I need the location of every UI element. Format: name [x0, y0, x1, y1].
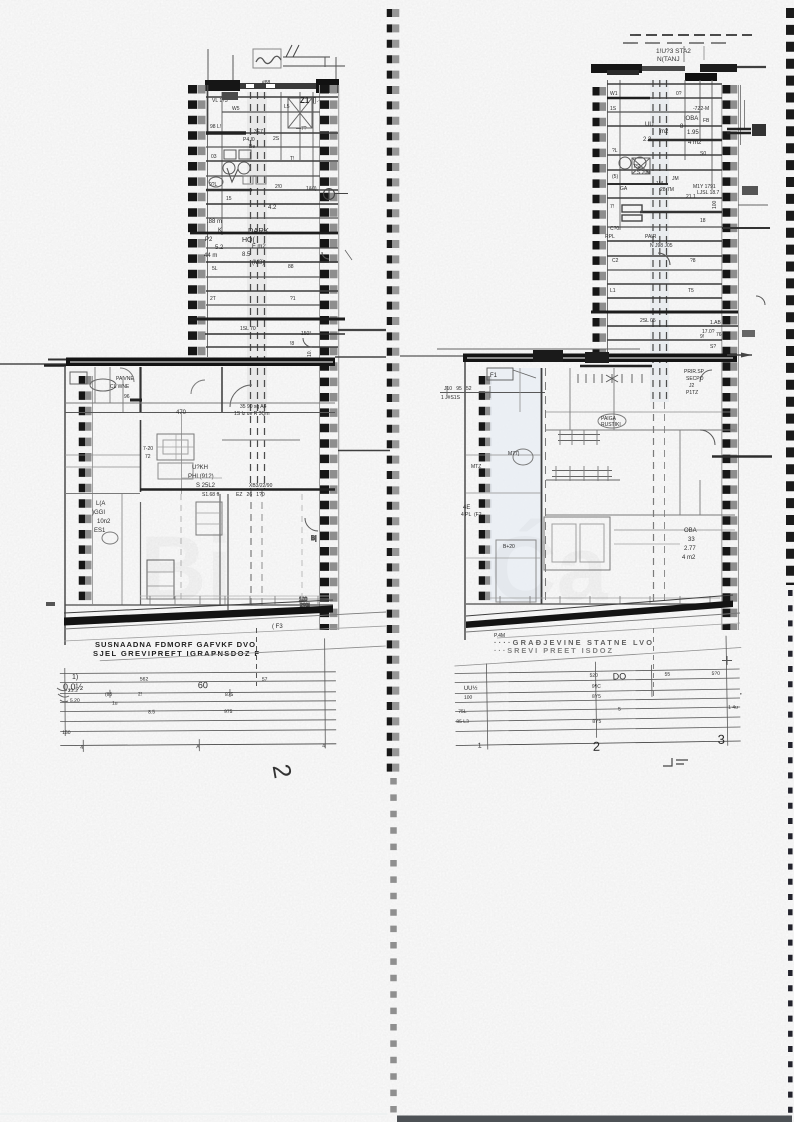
svg-text:SECPO: SECPO: [686, 376, 704, 382]
svg-text:P4.I0: P4.I0: [243, 137, 255, 143]
svg-text:U?KH: U?KH: [192, 465, 208, 471]
svg-text:S 208: S 208: [637, 170, 650, 176]
svg-text:4.2: 4.2: [268, 205, 277, 211]
svg-text:···SREVI PREET ISDOZ: ···SREVI PREET ISDOZ: [494, 646, 612, 655]
svg-text:0?: 0?: [676, 91, 682, 97]
svg-text:J10 95 52: J10 95 52: [444, 386, 472, 392]
svg-text:Ća: Ća: [490, 517, 608, 620]
svg-text:4 m2: 4 m2: [682, 555, 696, 561]
svg-text:1u: 1u: [112, 701, 118, 707]
svg-text:W5: W5: [232, 106, 240, 112]
svg-text:8.5: 8.5: [148, 709, 155, 715]
svg-text:55: 55: [665, 672, 671, 678]
svg-text:S1.68 ff: S1.68 ff: [202, 492, 220, 498]
svg-text:L5: L5: [284, 104, 290, 110]
svg-text:1): 1): [72, 674, 78, 681]
svg-text:B|: B|: [311, 536, 317, 542]
svg-text:150: 150: [62, 730, 71, 736]
svg-text:M77): M77): [508, 451, 520, 457]
svg-text:m2: m2: [660, 129, 669, 135]
svg-text:875: 875: [225, 692, 234, 698]
svg-text:44 m: 44 m: [204, 253, 217, 259]
svg-text:ES1: ES1: [94, 528, 106, 534]
svg-text:98 L!: 98 L!: [210, 124, 221, 130]
svg-text:(F2: (F2: [474, 512, 482, 518]
svg-text:?8: ?8: [690, 258, 696, 264]
svg-text:562: 562: [140, 676, 149, 682]
svg-text:2.77: 2.77: [684, 546, 696, 552]
svg-text:DO: DO: [613, 671, 627, 681]
svg-text:N J98 J05: N J98 J05: [650, 243, 673, 249]
svg-text:(M3): (M3): [252, 260, 264, 266]
svg-text:( F3: ( F3: [272, 624, 283, 630]
svg-text:S 25L2: S 25L2: [196, 483, 216, 489]
svg-text:1S Iz ue R 3Qm: 1S Iz ue R 3Qm: [234, 411, 270, 417]
svg-text:RUSTIKI: RUSTIKI: [601, 422, 621, 428]
svg-text:5L: 5L: [212, 266, 218, 272]
svg-text:72: 72: [145, 454, 151, 460]
svg-text:10n2: 10n2: [97, 519, 111, 525]
svg-text:K: K: [218, 228, 222, 234]
svg-text:HO(: HO(: [242, 237, 256, 244]
svg-text:5.2: 5.2: [215, 245, 224, 251]
svg-text:F1: F1: [490, 373, 498, 379]
svg-text:4 m2: 4 m2: [688, 140, 702, 146]
svg-text:100: 100: [712, 200, 718, 209]
svg-text:Bi: Bi: [140, 518, 232, 620]
svg-text:DARK: DARK: [248, 226, 269, 235]
svg-text:1S: 1S: [610, 106, 617, 112]
svg-text:PAIR: PAIR: [645, 234, 657, 240]
svg-text:57: 57: [262, 677, 268, 683]
svg-text:[].·: [].·: [313, 98, 320, 104]
svg-text:PRIR.SP: PRIR.SP: [684, 369, 705, 375]
svg-text:9¶C: 9¶C: [592, 684, 602, 690]
svg-text:-7Z2-M: -7Z2-M: [693, 106, 709, 112]
svg-text:P2: P2: [205, 237, 213, 243]
svg-text:F m2: F m2: [252, 244, 266, 250]
svg-text:1.AB: 1.AB: [710, 320, 722, 326]
svg-text:?L: ?L: [612, 148, 618, 154]
svg-text:1!U?3 STA2: 1!U?3 STA2: [656, 48, 691, 55]
svg-text:2.3: 2.3: [643, 137, 652, 143]
svg-text:2S: 2S: [273, 136, 280, 142]
svg-text:Be: Be: [249, 144, 255, 150]
svg-text:470: 470: [176, 410, 187, 416]
svg-text:EZ 26 1?0: EZ 26 1?0: [236, 492, 265, 498]
svg-text:5.20: 5.20: [70, 698, 80, 704]
svg-text:!8: !8: [290, 341, 294, 347]
svg-text:N(TANJ: N(TANJ: [657, 56, 680, 63]
svg-text:XB3/22/90: XB3/22/90: [249, 483, 273, 489]
svg-text:3E7: 3E7: [254, 129, 263, 135]
svg-text:5: 5: [618, 706, 621, 712]
svg-text:60: 60: [198, 680, 208, 690]
svg-text:L(A: L(A: [96, 501, 105, 507]
svg-text:4: 4: [322, 743, 325, 749]
svg-text:17.0?: 17.0?: [702, 329, 715, 335]
svg-text:35 90 xq A4: 35 90 xq A4: [240, 404, 267, 410]
svg-text:(85: (85: [105, 692, 112, 698]
svg-text:T5: T5: [688, 288, 694, 294]
svg-text:1&0): 1&0): [306, 186, 317, 192]
svg-text:1SL 70: 1SL 70: [240, 326, 256, 332]
svg-text:2SL 05: 2SL 05: [640, 318, 656, 324]
svg-text:MTZ: MTZ: [471, 464, 481, 470]
svg-text:1.95: 1.95: [687, 130, 699, 136]
svg-text:7-20: 7-20: [143, 446, 153, 452]
svg-text:975: 975: [224, 709, 233, 715]
svg-text:8Y5: 8Y5: [592, 719, 601, 725]
svg-text:W1: W1: [610, 91, 618, 97]
svg-text:C2: C2: [612, 258, 619, 264]
svg-text:23.3: 23.3: [68, 688, 78, 694]
svg-text:18: 18: [700, 218, 706, 224]
svg-text:1: 1: [478, 743, 482, 750]
svg-text:—7?: —7?: [296, 126, 307, 132]
svg-text:7!: 7!: [610, 204, 614, 210]
svg-text:88: 88: [288, 264, 294, 270]
svg-text:FB: FB: [703, 118, 710, 124]
svg-text:RPL: RPL: [605, 234, 615, 240]
svg-text:4 PL: 4 PL: [461, 512, 472, 518]
svg-text:PHL(912): PHL(912): [188, 474, 214, 480]
svg-text:10.: 10.: [307, 350, 313, 357]
svg-text:UU: UU: [645, 122, 654, 128]
svg-text:33: 33: [688, 537, 695, 543]
svg-text:4: 4: [80, 745, 83, 751]
svg-text:2!: 2!: [138, 691, 142, 697]
svg-text:8.5: 8.5: [242, 252, 251, 258]
svg-text:LJSL 18.7: LJSL 18.7: [697, 190, 720, 196]
svg-text:J2: J2: [689, 383, 695, 389]
svg-text:PA VNE: PA VNE: [116, 376, 134, 382]
svg-text:.88 m: .88 m: [207, 219, 222, 225]
svg-text:28 7M: 28 7M: [660, 187, 674, 193]
svg-text:T!: T!: [290, 156, 294, 162]
svg-text:1 4u: 1 4u: [728, 705, 738, 711]
svg-text:15: 15: [226, 196, 232, 202]
svg-text:75L: 75L: [458, 709, 467, 715]
svg-text:100: 100: [464, 695, 473, 701]
svg-text:UU½: UU½: [464, 685, 478, 692]
svg-text:Z1: Z1: [300, 96, 310, 105]
svg-text:96: 96: [124, 394, 130, 400]
svg-text:?1: ?1: [290, 296, 296, 302]
svg-text:(5): (5): [612, 174, 618, 180]
svg-text:SUSNAADNA FDMORF GAFVKF DVO: SUSNAADNA FDMORF GAFVKF DVO: [95, 640, 255, 649]
svg-text:150°: 150°: [301, 331, 311, 337]
svg-text:5?0: 5?0: [712, 671, 721, 677]
svg-text:2: 2: [593, 739, 600, 754]
svg-text:|OBA: |OBA: [684, 116, 698, 122]
svg-text:OBA: OBA: [684, 528, 697, 534]
svg-text:L1: L1: [610, 288, 616, 294]
svg-text:2T: 2T: [210, 296, 216, 302]
svg-text:JM: JM: [672, 176, 679, 182]
svg-text:8Y5: 8Y5: [592, 694, 601, 700]
svg-text:03: 03: [211, 154, 217, 160]
svg-text:)GGI: )GGI: [92, 510, 105, 516]
svg-text:S0: S0: [700, 151, 706, 157]
svg-text:#88: #88: [262, 80, 271, 86]
svg-text:1 J#S1S: 1 J#S1S: [441, 395, 461, 401]
svg-text:3: 3: [718, 732, 725, 747]
svg-text:76: 76: [716, 332, 722, 338]
svg-text:2!0: 2!0: [275, 184, 282, 190]
svg-text:520: 520: [590, 673, 599, 679]
svg-text:21 1: 21 1: [686, 194, 696, 200]
svg-text:4E: 4E: [463, 505, 470, 511]
svg-text:P1TZ: P1TZ: [686, 390, 698, 396]
svg-text:85 L3: 85 L3: [456, 719, 469, 725]
svg-text:C?0: C?0: [610, 226, 619, 232]
svg-text:S?: S?: [710, 344, 716, 350]
svg-text:CL WNE: CL WNE: [110, 384, 130, 390]
svg-text:GA: GA: [620, 186, 628, 192]
